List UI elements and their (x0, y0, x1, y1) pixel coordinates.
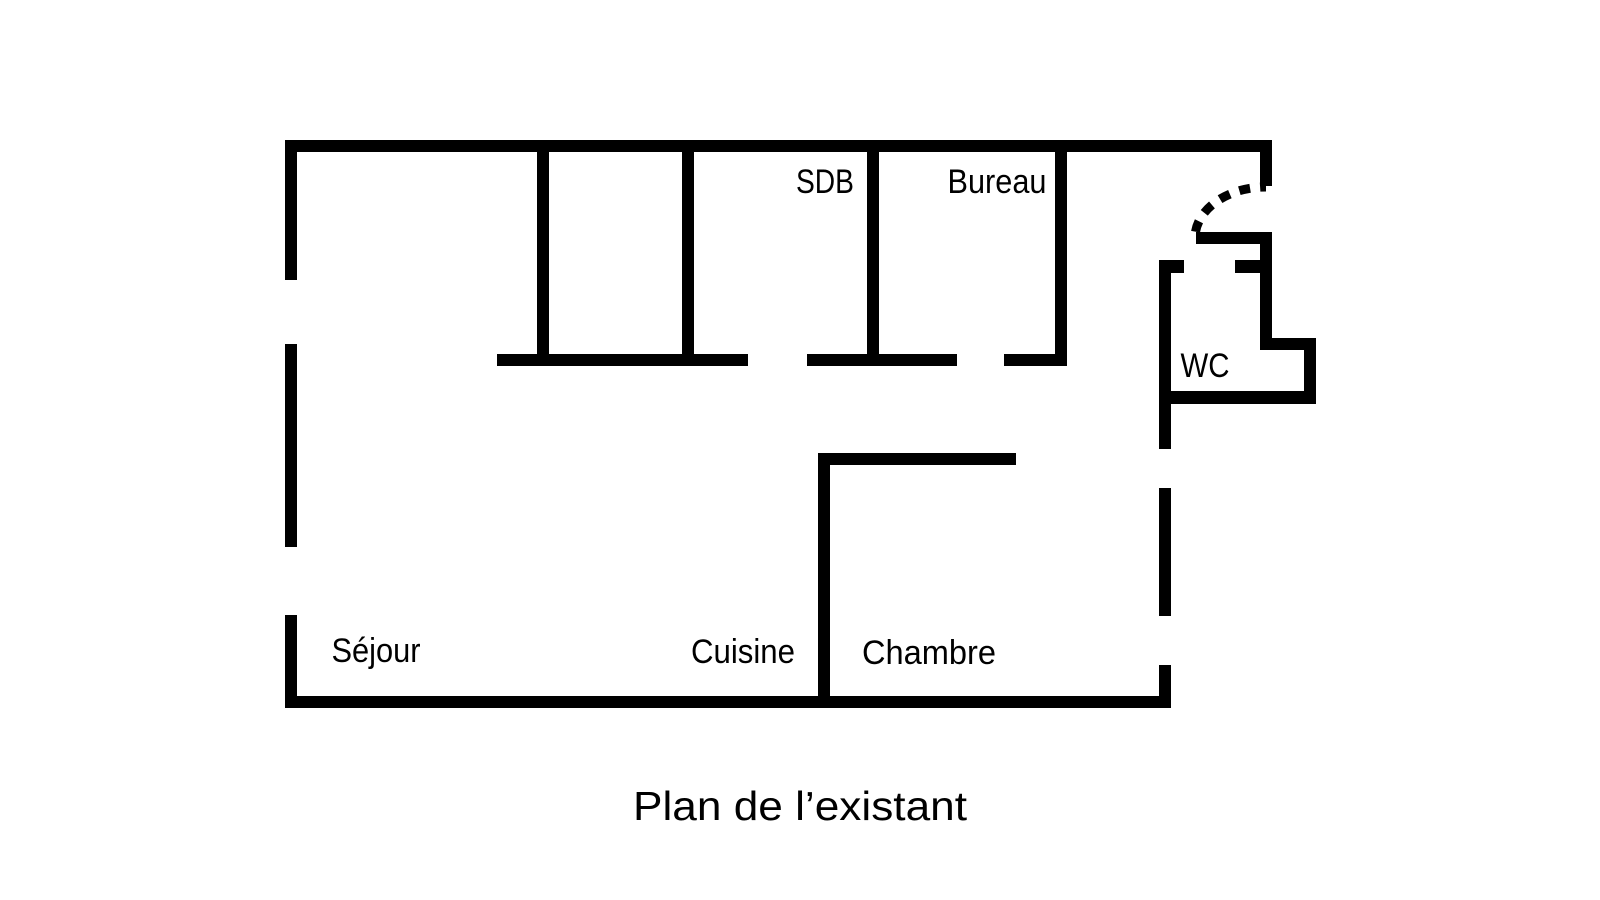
svg-text:Cuisine: Cuisine (691, 633, 795, 671)
svg-text:Plan de l’existant: Plan de l’existant (633, 783, 968, 829)
svg-text:Séjour: Séjour (332, 632, 421, 670)
svg-text:WC: WC (1181, 347, 1230, 385)
svg-text:SDB: SDB (796, 163, 854, 201)
svg-text:Bureau: Bureau (948, 163, 1047, 201)
svg-text:Chambre: Chambre (862, 634, 996, 672)
